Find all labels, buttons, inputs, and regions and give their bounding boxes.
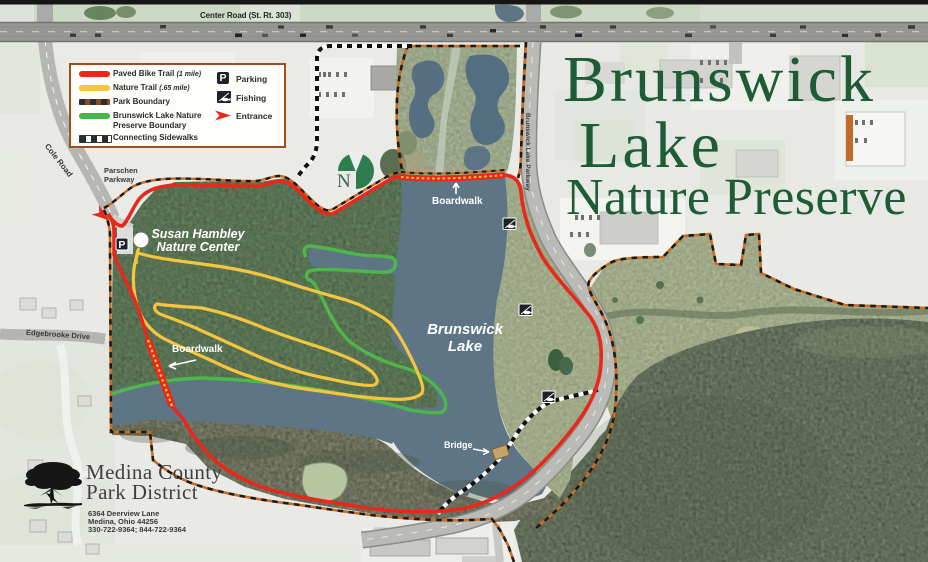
svg-text:N: N xyxy=(337,171,351,192)
svg-text:P: P xyxy=(118,239,125,251)
